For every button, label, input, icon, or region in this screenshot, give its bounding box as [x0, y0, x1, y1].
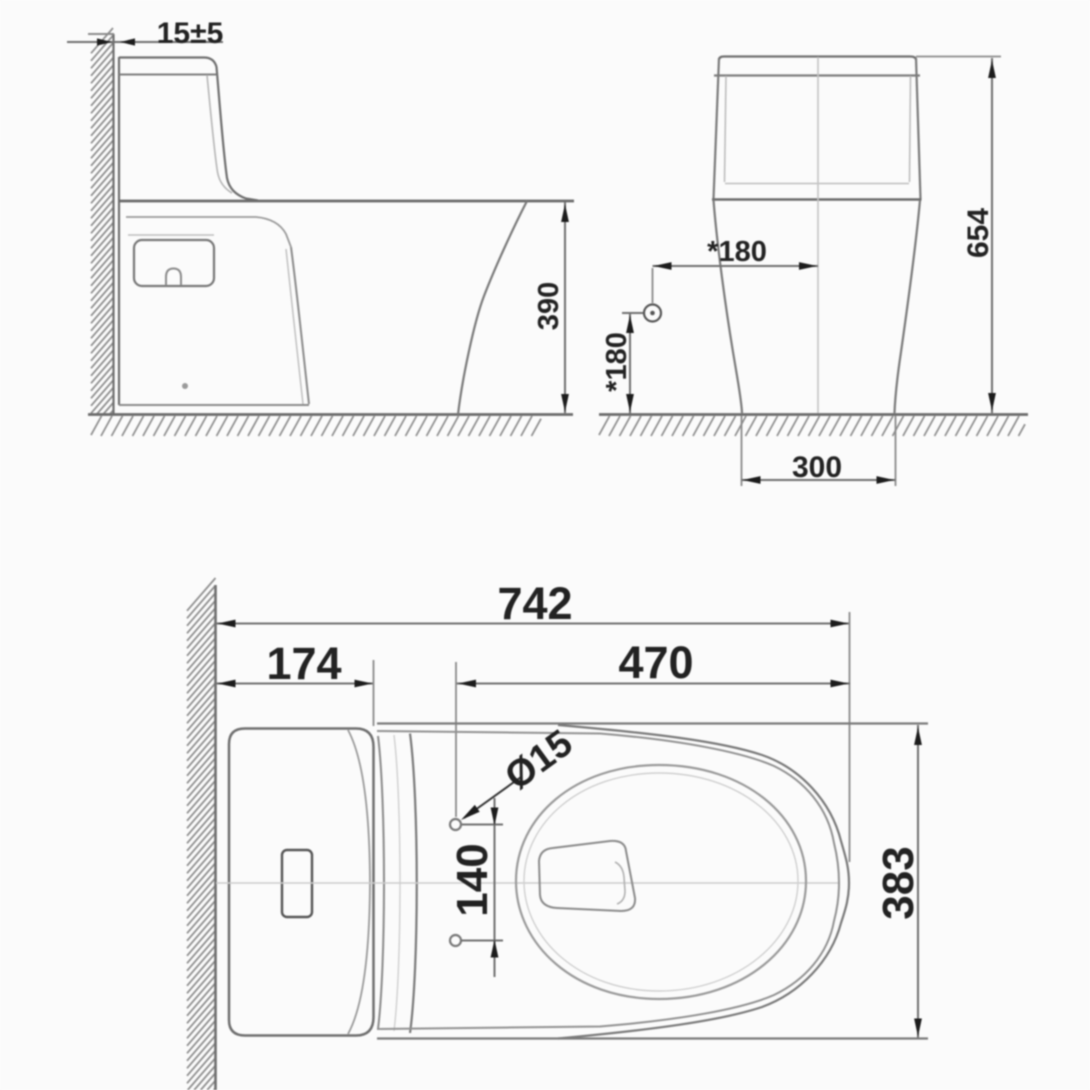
- svg-text:390: 390: [533, 282, 565, 330]
- svg-text:470: 470: [618, 637, 693, 688]
- svg-text:140: 140: [448, 843, 497, 916]
- svg-text:742: 742: [497, 578, 572, 629]
- svg-text:15±5: 15±5: [157, 17, 224, 50]
- svg-text:*180: *180: [707, 236, 767, 268]
- svg-text:654: 654: [962, 208, 995, 258]
- svg-text:300: 300: [792, 451, 842, 484]
- svg-text:174: 174: [266, 638, 341, 689]
- svg-text:*180: *180: [601, 332, 633, 392]
- svg-text:383: 383: [874, 846, 923, 919]
